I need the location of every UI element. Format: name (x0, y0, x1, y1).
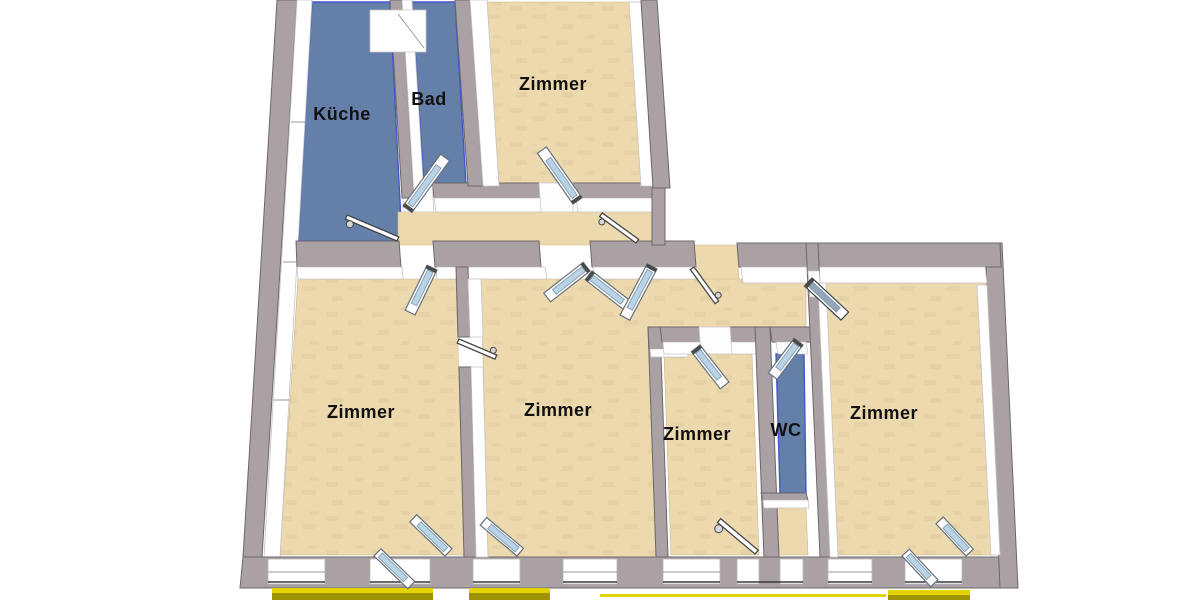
wall-face (741, 267, 987, 283)
room-label-zimmer-middle: Zimmer (524, 400, 592, 420)
wall-face (576, 198, 661, 212)
room-label-zimmer-top: Zimmer (519, 74, 587, 94)
wall-left-middle-upper (456, 267, 470, 337)
bottom-openings (268, 559, 962, 584)
window (737, 559, 759, 584)
window (780, 559, 803, 584)
wall-face (468, 279, 483, 337)
corridor-floor (398, 212, 652, 245)
wall-mid-b (433, 241, 541, 267)
balcony-door-opening (473, 559, 520, 584)
wall-wc-bottom (761, 493, 808, 500)
floor-texture (478, 2, 652, 186)
wall-mid-c (590, 241, 696, 267)
room-label-zimmer-left: Zimmer (327, 402, 395, 422)
room-label-wc: WC (771, 420, 802, 440)
room-label-kueche: Küche (313, 104, 371, 124)
balcony-left-edge (272, 588, 433, 593)
wall-small-top-b (728, 327, 759, 342)
balcony-right-edge (888, 590, 970, 595)
balcony-left (272, 593, 433, 600)
balcony-middle (469, 593, 550, 600)
wall-bottom-outer (240, 557, 1011, 588)
balcony-right (888, 595, 970, 600)
floor-plan-svg: Küche Bad Zimmer Zimmer Zimmer Zimmer WC… (0, 0, 1200, 600)
floor-texture (664, 354, 759, 555)
chimney-jog (370, 10, 426, 52)
wall-mid-a (296, 241, 401, 267)
wall-face (436, 267, 547, 279)
balcony-strip-edge (600, 594, 886, 597)
wall-face (297, 267, 403, 279)
floor-plan-canvas: Küche Bad Zimmer Zimmer Zimmer Zimmer WC… (0, 0, 1200, 600)
wall-top-right-section (737, 243, 1001, 267)
wall-face (763, 500, 809, 508)
balcony-middle-edge (469, 588, 550, 593)
wall-corridor-end (652, 188, 665, 245)
room-label-bad: Bad (411, 89, 447, 109)
room-label-zimmer-small: Zimmer (663, 424, 731, 444)
wall-face (434, 198, 542, 212)
room-label-zimmer-right: Zimmer (850, 403, 918, 423)
wall-small-top-a (660, 327, 701, 342)
